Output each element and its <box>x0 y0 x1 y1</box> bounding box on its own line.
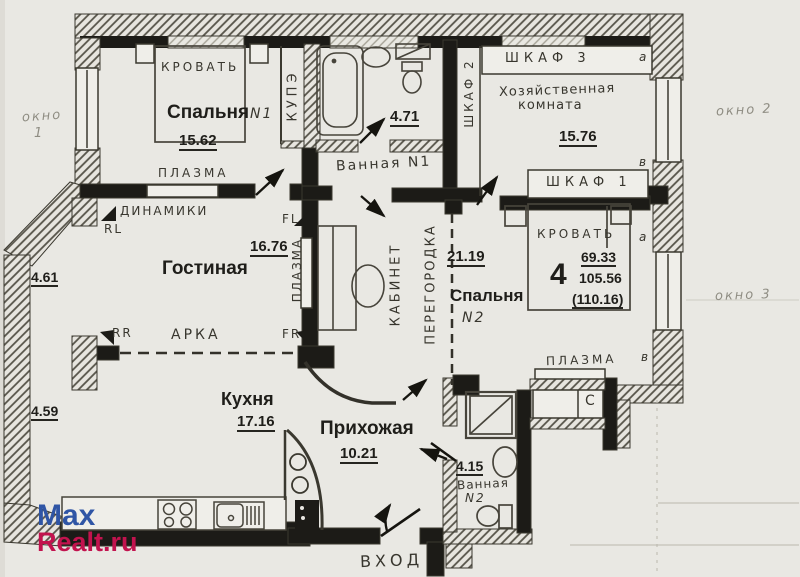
bed1-label: КРОВАТЬ <box>161 61 239 73</box>
wardrobe2-label: ШКАФ 2 <box>463 48 475 138</box>
bed2-label: КРОВАТЬ <box>537 228 615 240</box>
bedroom1-area: 15.62 <box>179 133 217 151</box>
dimension-upper: 4.61 <box>31 270 58 287</box>
dimension-lower: 4.59 <box>31 404 58 421</box>
axis-mark-3: а <box>639 231 648 243</box>
kitchen-area: 17.16 <box>237 414 275 432</box>
window2-label: окно 2 <box>716 103 773 119</box>
bedroom2-number: N2 <box>462 311 485 325</box>
flat-area-living: 69.33 <box>581 250 616 267</box>
axis-mark-2: в <box>639 156 648 168</box>
hallway-name: Прихожая <box>320 419 414 438</box>
bedroom1-tv-label: ПЛАЗМА <box>158 167 229 179</box>
speaker-rl-label: RL <box>104 223 123 235</box>
living-area: 16.76 <box>250 239 288 257</box>
flat-area-full: (110.16) <box>572 292 623 309</box>
bathroom1-area: 4.71 <box>390 109 419 127</box>
bedroom1-number: N1 <box>250 107 273 121</box>
wardrobe3-label: ШКАФ 3 <box>505 52 591 65</box>
office-label: КАБИНЕТ <box>390 230 403 340</box>
office-desk <box>318 226 384 330</box>
bathroom2-area: 4.15 <box>456 459 483 476</box>
flat-area-total: 105.56 <box>579 271 622 285</box>
speaker-fl-label: FL <box>282 213 300 225</box>
curved-bar <box>285 430 322 530</box>
hallway-area: 10.21 <box>340 446 378 464</box>
window3-label: окно 3 <box>715 288 772 303</box>
partition-label: ПЕРЕГОРОДКА <box>425 215 438 355</box>
speakers-label: ДИНАМИКИ <box>120 205 208 217</box>
utility-name-line1: Хозяйственная <box>499 82 616 99</box>
entrance-label: ВХОД <box>360 552 424 570</box>
watermark-line2: Realt.ru <box>37 527 138 558</box>
living-name: Гостиная <box>162 259 248 278</box>
bedroom2-tv-label: ПЛАЗМА <box>546 353 617 367</box>
axis-mark-1: а <box>639 51 648 63</box>
utility-name-line2: комната <box>518 99 583 112</box>
arch-label: АРКА <box>171 328 221 342</box>
axis-mark-4: в <box>641 351 650 363</box>
kitchen-name: Кухня <box>221 390 274 408</box>
corridor-area: 21.19 <box>447 249 485 267</box>
wardrobe1-label: ШКАФ 1 <box>546 176 632 189</box>
bathroom2-name-line2: N2 <box>465 492 486 504</box>
bedroom1-name: Спальня <box>167 103 249 122</box>
kitchen-counter <box>62 497 286 530</box>
window1-label-line2: 1 <box>34 127 44 140</box>
utility-area: 15.76 <box>559 129 597 147</box>
speaker-rl-icon <box>101 206 116 221</box>
bedroom2-name: Спальня <box>450 287 523 304</box>
living-tv-label: ПЛАЗМА <box>291 234 303 306</box>
kupe-label: КУПЭ <box>287 51 300 141</box>
speaker-fr-label: FR <box>282 328 301 340</box>
floor-plan: КРОВАТЬ Спальня N1 15.62 ПЛАЗМА КУПЭ 4.7… <box>0 0 800 577</box>
window1-label-line1: окно <box>22 109 63 125</box>
speaker-rr-label: RR <box>112 327 133 339</box>
bathroom2-name-line1: Ванная <box>457 477 509 492</box>
flat-number: 4 <box>550 260 567 290</box>
shaft-mark: С <box>585 394 597 408</box>
